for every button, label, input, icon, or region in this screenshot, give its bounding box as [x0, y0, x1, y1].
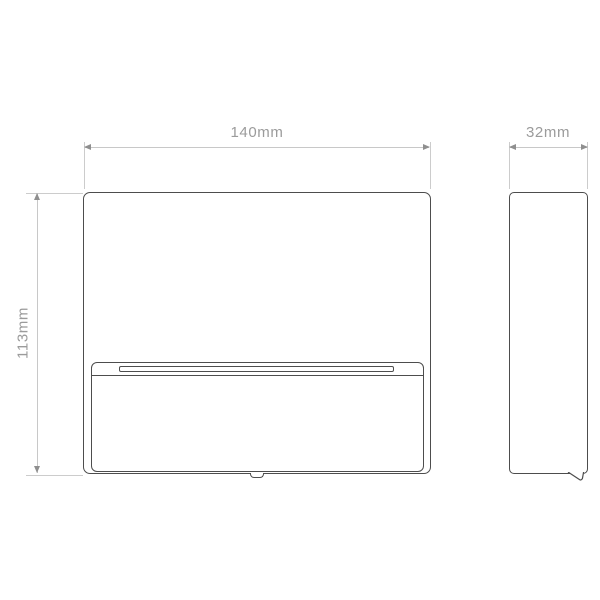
width-extension-line-right	[430, 142, 431, 189]
bottom-tab	[250, 473, 264, 478]
depth-dimension-line	[510, 147, 587, 148]
width-dimension-line	[85, 147, 429, 148]
panel-divider-line	[92, 375, 423, 376]
depth-dimension-label: 32mm	[526, 125, 570, 140]
side-bottom-flap	[565, 472, 589, 484]
width-dimension-label: 140mm	[230, 125, 283, 140]
arrowhead-down-icon	[34, 466, 40, 473]
arrowhead-left-icon	[84, 144, 91, 150]
arrowhead-left-icon	[509, 144, 516, 150]
height-dimension-label: 113mm	[16, 307, 31, 359]
dimension-drawing-canvas: 140mm 32mm 113mm	[0, 0, 600, 600]
front-lower-panel	[91, 362, 424, 472]
side-view-outline	[509, 192, 588, 474]
height-extension-line-bottom	[26, 475, 83, 476]
height-dimension-line	[37, 194, 38, 473]
light-slot	[119, 366, 394, 372]
arrowhead-up-icon	[34, 193, 40, 200]
arrowhead-right-icon	[581, 144, 588, 150]
arrowhead-right-icon	[423, 144, 430, 150]
